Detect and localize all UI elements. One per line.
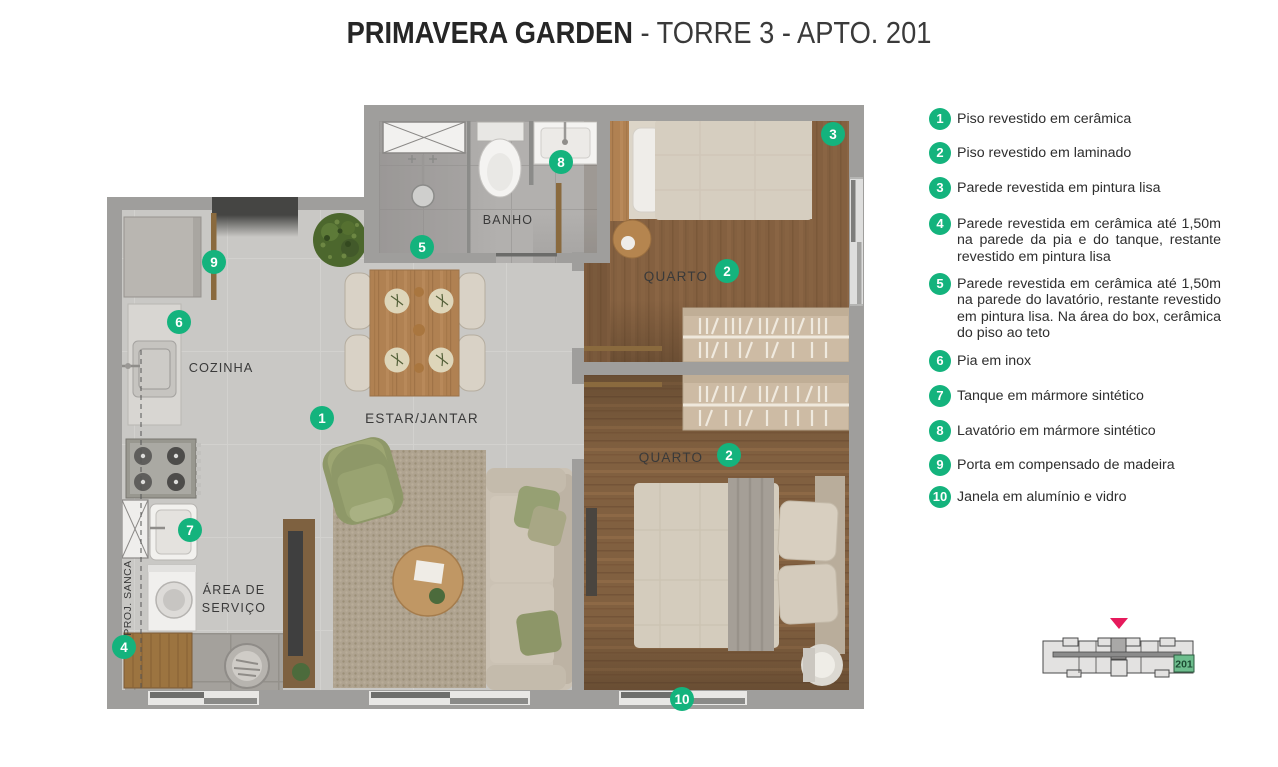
svg-text:BANHO: BANHO [483,213,533,227]
svg-text:QUARTO: QUARTO [644,269,708,284]
svg-text:2: 2 [723,264,731,279]
svg-text:3: 3 [829,127,837,142]
svg-text:SERVIÇO: SERVIÇO [202,601,266,615]
svg-text:8: 8 [557,155,565,170]
svg-text:4: 4 [120,640,128,655]
svg-text:9: 9 [210,255,218,270]
svg-text:1: 1 [318,411,326,426]
svg-text:ESTAR/JANTAR: ESTAR/JANTAR [365,411,479,426]
svg-text:PROJ. SANCA: PROJ. SANCA [122,560,134,636]
svg-text:5: 5 [418,240,426,255]
svg-text:COZINHA: COZINHA [189,360,254,375]
svg-text:6: 6 [175,315,183,330]
svg-text:ÁREA DE: ÁREA DE [203,582,266,597]
svg-text:201: 201 [1175,659,1193,671]
svg-text:QUARTO: QUARTO [639,450,703,465]
svg-text:2: 2 [725,448,733,463]
svg-text:7: 7 [186,523,194,538]
svg-text:10: 10 [674,692,689,707]
